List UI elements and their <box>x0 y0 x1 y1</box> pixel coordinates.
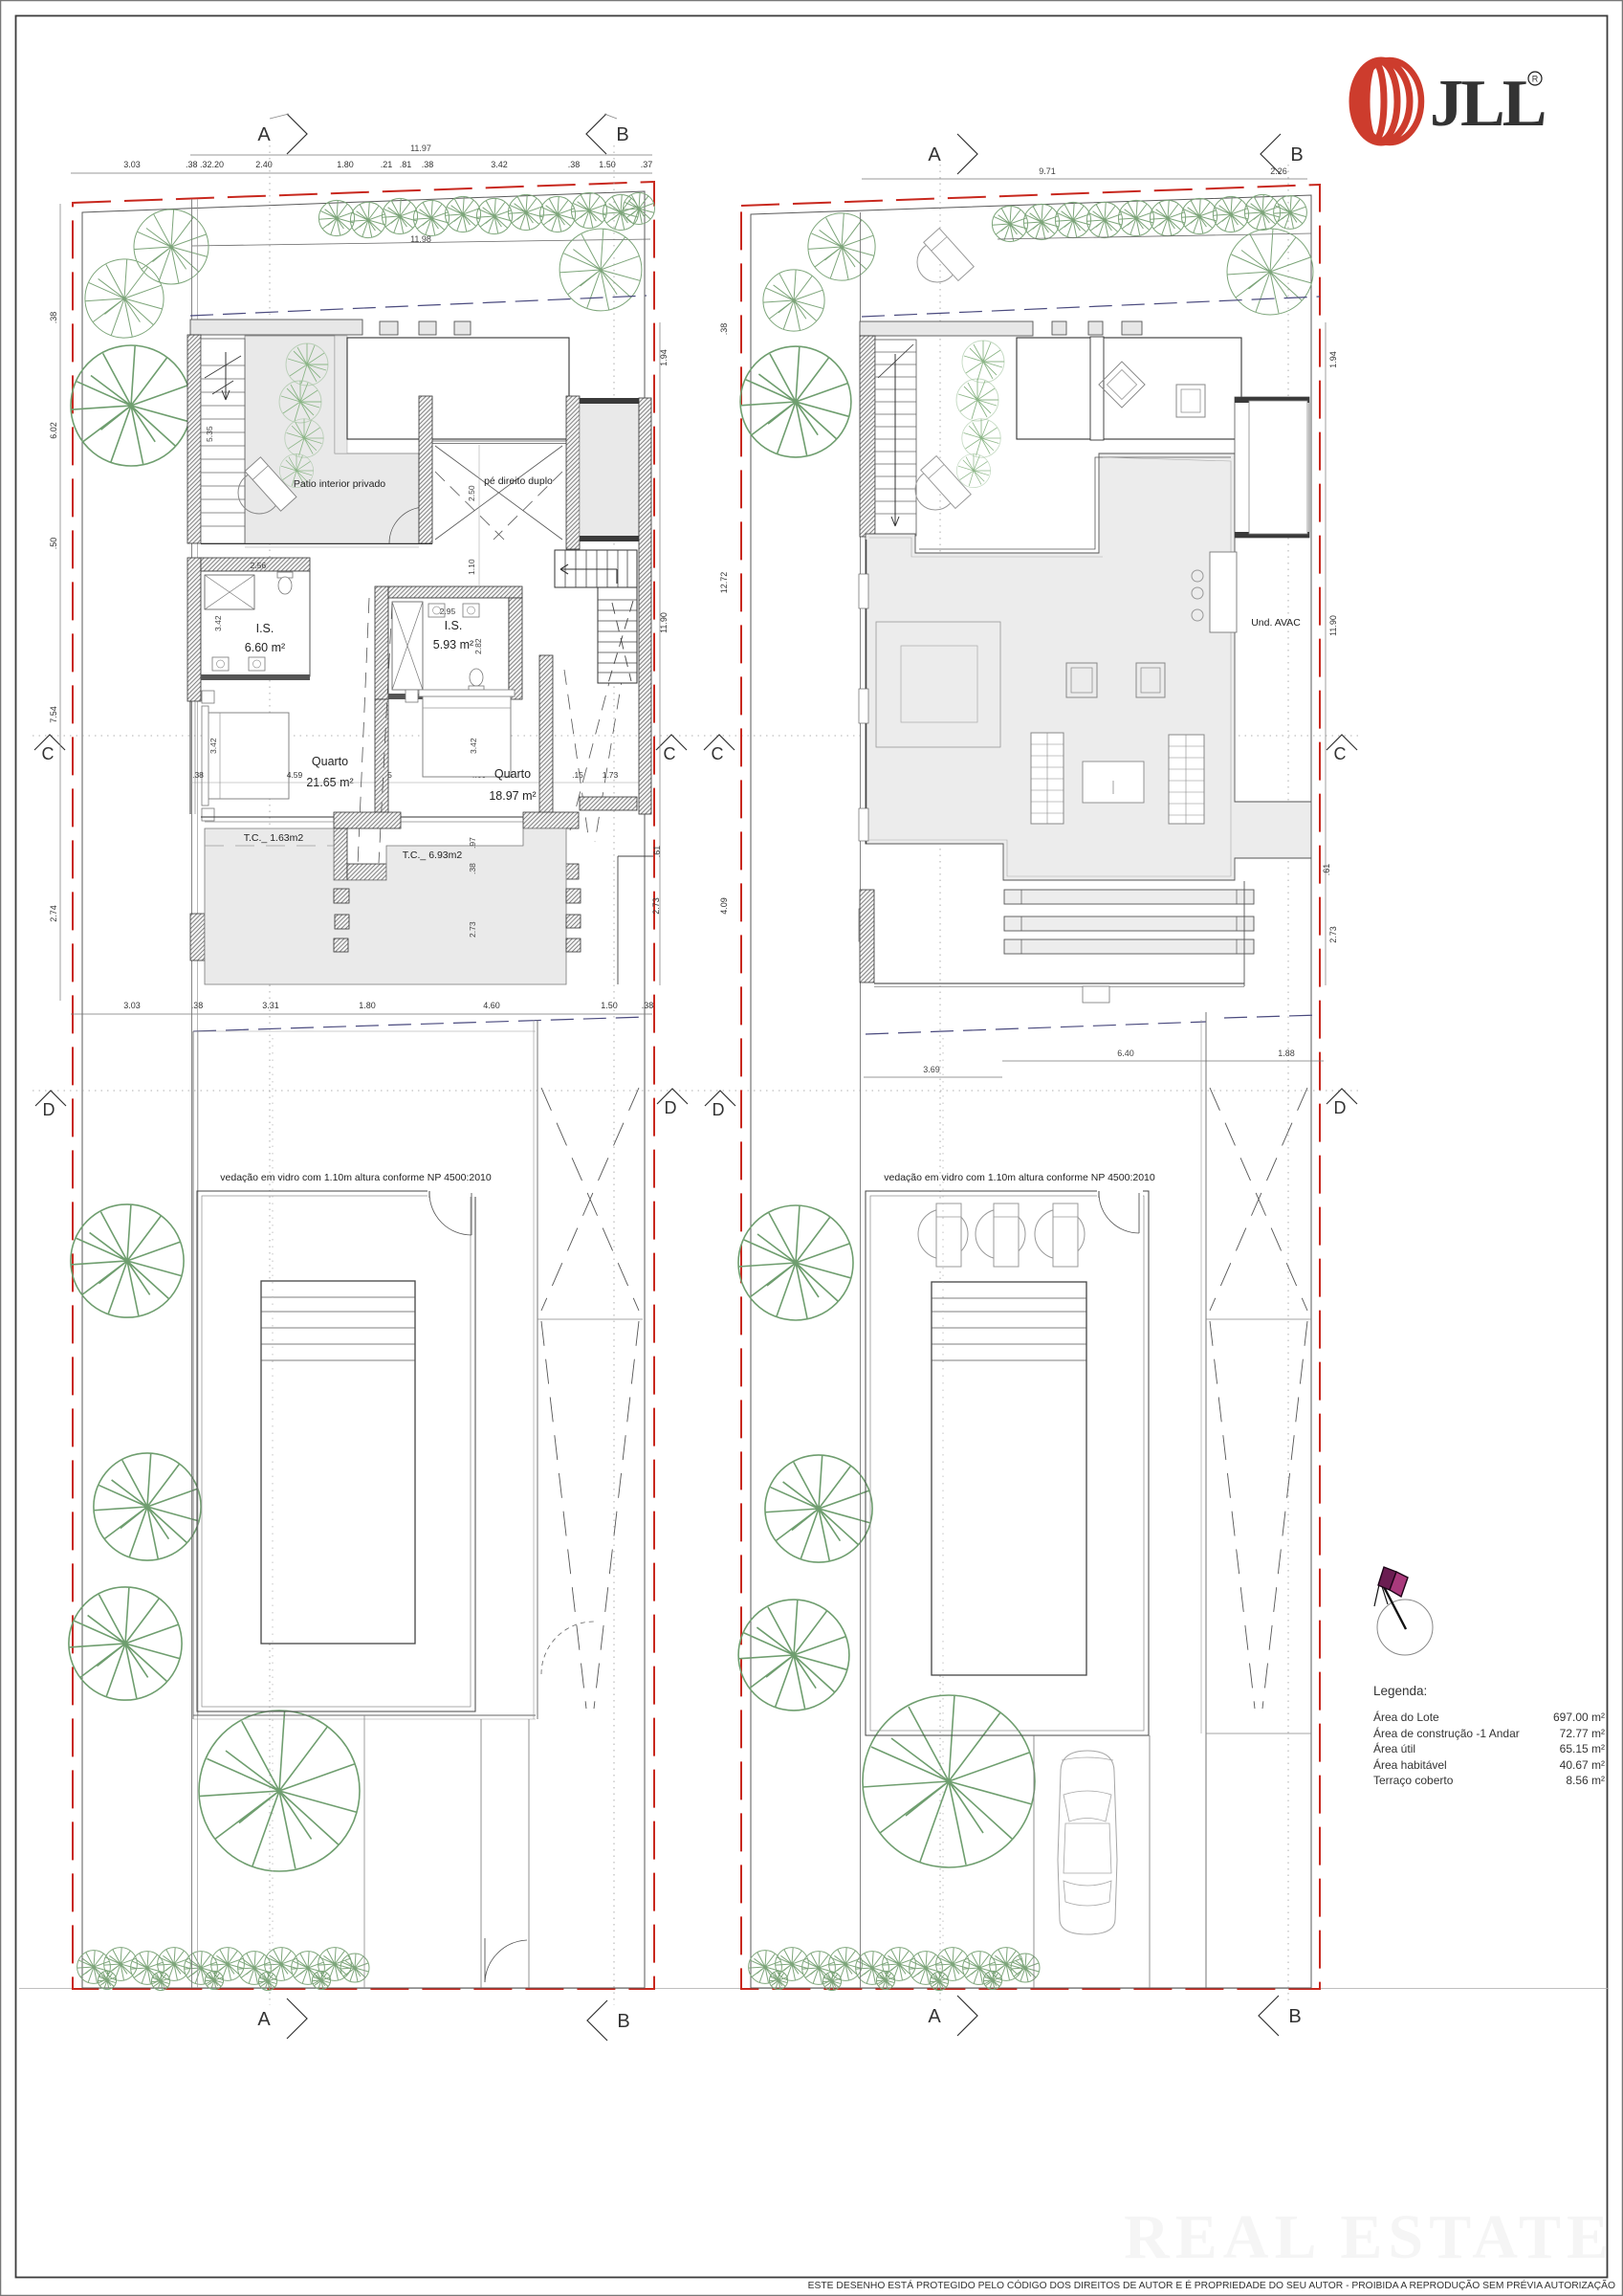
svg-text:8.56 m²: 8.56 m² <box>1566 1774 1605 1787</box>
svg-text:1.94: 1.94 <box>659 349 669 366</box>
svg-text:1.50: 1.50 <box>599 160 616 169</box>
svg-text:.38 .32.20: .38 .32.20 <box>186 160 224 169</box>
svg-text:3.03: 3.03 <box>123 1001 141 1010</box>
svg-text:1.50: 1.50 <box>601 1001 618 1010</box>
svg-text:vedação em vidro com 1.10m alt: vedação em vidro com 1.10m altura confor… <box>220 1172 492 1183</box>
svg-text:5.93 m²: 5.93 m² <box>433 638 473 651</box>
svg-text:ESTE DESENHO ESTÁ PROTEGIDO PE: ESTE DESENHO ESTÁ PROTEGIDO PELO CÓDIGO … <box>808 2279 1615 2291</box>
svg-text:Área útil: Área útil <box>1373 1741 1415 1755</box>
svg-text:vedação em vidro com 1.10m alt: vedação em vidro com 1.10m altura confor… <box>884 1172 1155 1183</box>
svg-text:Quarto: Quarto <box>312 755 348 768</box>
svg-text:Patio interior privado: Patio interior privado <box>294 478 385 490</box>
svg-text:2.74: 2.74 <box>49 905 58 922</box>
svg-text:1.88: 1.88 <box>1278 1049 1295 1058</box>
svg-text:.38: .38 <box>49 312 58 324</box>
svg-text:.61: .61 <box>1322 864 1331 876</box>
svg-text:B: B <box>616 124 628 145</box>
svg-text:1.94: 1.94 <box>1328 351 1338 368</box>
svg-text:4.59: 4.59 <box>287 770 303 780</box>
svg-text:3.03: 3.03 <box>123 160 141 169</box>
svg-text:1.80: 1.80 <box>337 160 354 169</box>
svg-text:C: C <box>664 744 676 763</box>
svg-text:.38: .38 <box>468 863 477 874</box>
svg-text:D: D <box>1334 1098 1347 1117</box>
svg-text:2.73: 2.73 <box>468 921 477 938</box>
svg-text:1.80: 1.80 <box>359 1001 376 1010</box>
svg-text:11.90: 11.90 <box>659 612 669 633</box>
svg-text:.38: .38 <box>192 770 204 780</box>
svg-text:4.60: 4.60 <box>483 1001 500 1010</box>
svg-text:Quarto: Quarto <box>494 767 531 781</box>
svg-text:2.73: 2.73 <box>1328 926 1338 943</box>
svg-text:B: B <box>617 2011 629 2032</box>
svg-text:JLL: JLL <box>1430 67 1545 141</box>
svg-text:.38: .38 <box>191 1001 204 1010</box>
svg-text:.37: .37 <box>641 160 653 169</box>
svg-text:2.73: 2.73 <box>651 897 661 915</box>
svg-text:Terraço coberto: Terraço coberto <box>1373 1774 1454 1787</box>
svg-text:Área do Lote: Área do Lote <box>1373 1710 1439 1724</box>
svg-text:2.56: 2.56 <box>251 561 267 570</box>
svg-text:2.50: 2.50 <box>467 485 476 501</box>
svg-text:I.S.: I.S. <box>445 619 463 632</box>
svg-text:D: D <box>665 1098 677 1117</box>
svg-text:2.40: 2.40 <box>255 160 273 169</box>
svg-text:.97: .97 <box>468 837 477 849</box>
svg-text:.38: .38 <box>568 160 581 169</box>
svg-text:D: D <box>43 1100 55 1119</box>
svg-text:6.02: 6.02 <box>49 422 58 439</box>
svg-text:A: A <box>928 144 941 166</box>
svg-text:2.95: 2.95 <box>440 607 456 616</box>
svg-text:.50: .50 <box>49 538 58 550</box>
svg-text:3.42: 3.42 <box>469 738 478 754</box>
svg-text:1.73: 1.73 <box>603 770 619 780</box>
svg-text:65.15 m²: 65.15 m² <box>1560 1742 1605 1755</box>
svg-text:A: A <box>257 124 271 145</box>
svg-text:11.90: 11.90 <box>1328 615 1338 636</box>
svg-text:R: R <box>1532 75 1539 84</box>
svg-text:2.26: 2.26 <box>1270 166 1287 176</box>
svg-text:6.40: 6.40 <box>1117 1049 1134 1058</box>
svg-text:.15: .15 <box>572 770 583 780</box>
svg-text:REAL ESTATE: REAL ESTATE <box>1124 2202 1614 2272</box>
svg-text:.81: .81 <box>400 160 412 169</box>
svg-text:9.71: 9.71 <box>1039 166 1056 176</box>
svg-text:1.10: 1.10 <box>467 559 476 575</box>
svg-text:40.67 m²: 40.67 m² <box>1560 1758 1605 1772</box>
svg-text:11.98: 11.98 <box>410 234 431 244</box>
svg-text:C: C <box>712 744 724 763</box>
svg-text:2.82: 2.82 <box>473 638 483 654</box>
svg-text:5.35: 5.35 <box>205 426 214 442</box>
svg-text:.38: .38 <box>642 1001 654 1010</box>
svg-text:.61: .61 <box>652 846 662 858</box>
svg-text:B: B <box>1290 144 1303 166</box>
svg-text:3.31: 3.31 <box>262 1001 279 1010</box>
svg-text:7.54: 7.54 <box>49 706 58 723</box>
svg-text:3.69: 3.69 <box>923 1065 940 1074</box>
svg-text:.21: .21 <box>381 160 393 169</box>
svg-text:697.00 m²: 697.00 m² <box>1553 1711 1605 1724</box>
svg-text:Und. AVAC: Und. AVAC <box>1251 617 1301 629</box>
svg-text:D: D <box>713 1100 725 1119</box>
svg-text:6.60 m²: 6.60 m² <box>245 641 285 654</box>
svg-text:A: A <box>257 2009 271 2030</box>
svg-text:3.42: 3.42 <box>208 738 218 754</box>
svg-text:T.C._ 6.93m2: T.C._ 6.93m2 <box>403 850 463 861</box>
svg-text:T.C._ 1.63m2: T.C._ 1.63m2 <box>244 832 304 844</box>
svg-text:A: A <box>928 2006 941 2027</box>
svg-text:.38: .38 <box>422 160 434 169</box>
svg-text:C: C <box>42 744 55 763</box>
svg-text:11.97: 11.97 <box>410 143 431 153</box>
svg-text:18.97 m²: 18.97 m² <box>489 789 536 803</box>
svg-text:C: C <box>1334 744 1347 763</box>
svg-text:Área de construção -1 Andar: Área de construção -1 Andar <box>1373 1726 1520 1740</box>
svg-text:4.09: 4.09 <box>719 897 729 915</box>
svg-text:I.S.: I.S. <box>256 622 274 635</box>
svg-text:3.42: 3.42 <box>491 160 508 169</box>
svg-text:pé direito duplo: pé direito duplo <box>484 475 553 487</box>
svg-text:B: B <box>1288 2006 1301 2027</box>
svg-text:.38: .38 <box>719 323 729 336</box>
svg-text:12.72: 12.72 <box>719 572 729 594</box>
svg-text:72.77 m²: 72.77 m² <box>1560 1727 1605 1740</box>
svg-text:Legenda:: Legenda: <box>1373 1684 1427 1698</box>
svg-text:Área habitável: Área habitável <box>1373 1757 1447 1772</box>
svg-text:3.42: 3.42 <box>213 615 223 631</box>
